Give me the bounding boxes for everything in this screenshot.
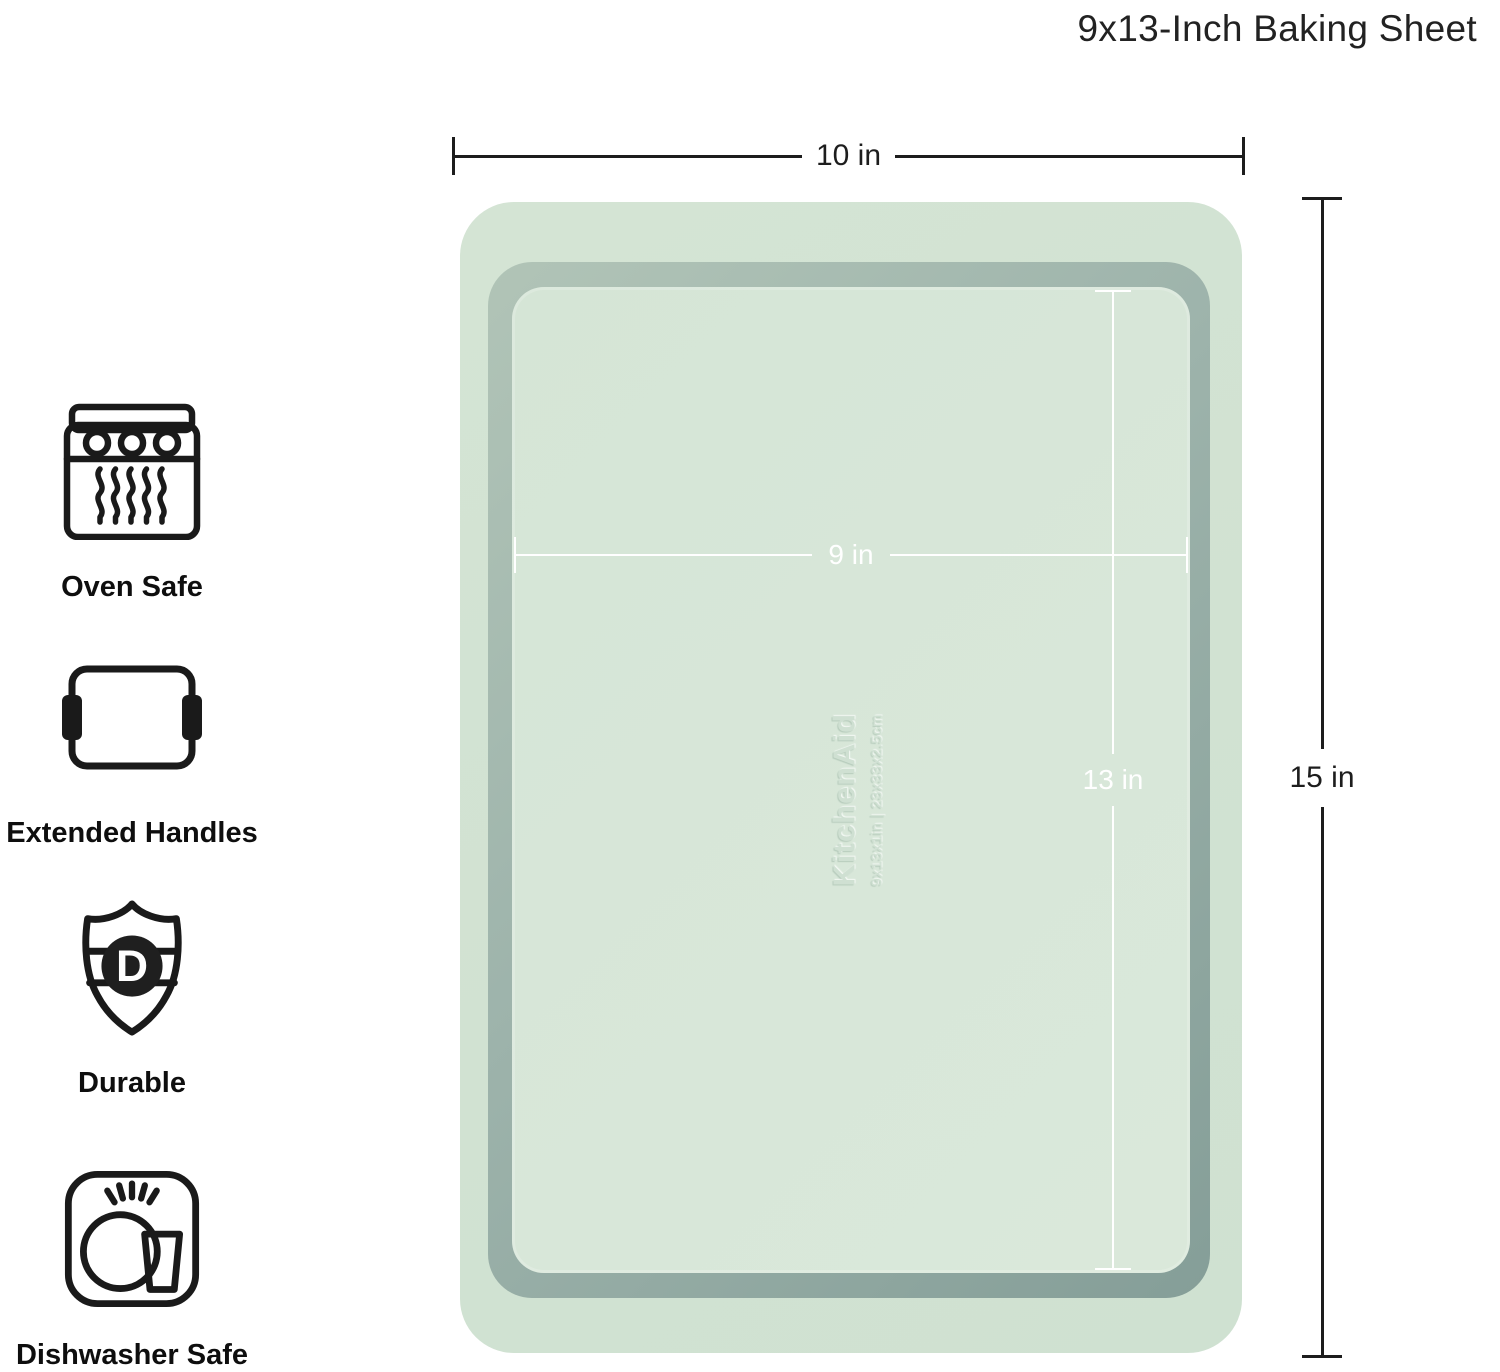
- feature-dishwasher-safe: Dishwasher Safe: [0, 1170, 264, 1372]
- dimension-line: [895, 155, 1242, 158]
- inner-width-label: 9 in: [812, 539, 889, 571]
- durable-badge-letter: D: [116, 942, 148, 991]
- feature-label-oven-safe: Oven Safe: [61, 571, 203, 604]
- feature-oven-safe: Oven Safe: [0, 403, 264, 604]
- dishwasher-icon: [62, 1170, 202, 1313]
- feature-label-dishwasher-safe: Dishwasher Safe: [16, 1339, 248, 1372]
- extended-handles-icon: [61, 665, 203, 775]
- dimension-line: [1112, 806, 1114, 1268]
- dimension-line: [516, 554, 812, 556]
- inner-width-dimension: 9 in: [514, 536, 1188, 574]
- dimension-line: [1321, 200, 1324, 749]
- dimension-line: [455, 155, 802, 158]
- outer-width-label: 10 in: [802, 139, 895, 173]
- dimension-tick: [1302, 1355, 1342, 1358]
- feature-label-extended-handles: Extended Handles: [6, 817, 257, 850]
- outer-height-label: 15 in: [1289, 749, 1354, 807]
- feature-label-durable: Durable: [78, 1067, 186, 1100]
- baking-sheet-wall: KitchenAid 9x13x1in | 23x33x2.5cm 9 in 1…: [488, 262, 1210, 1298]
- embossed-branding: KitchenAid 9x13x1in | 23x33x2.5cm: [827, 687, 886, 887]
- dimension-tick: [1242, 137, 1245, 175]
- baking-sheet: KitchenAid 9x13x1in | 23x33x2.5cm 9 in 1…: [460, 202, 1242, 1353]
- embossed-brand-text: KitchenAid: [827, 687, 863, 887]
- outer-width-dimension: 10 in: [452, 137, 1245, 175]
- page-title: 9x13-Inch Baking Sheet: [1078, 8, 1477, 50]
- inner-length-label: 13 in: [1083, 754, 1144, 806]
- baking-sheet-floor: KitchenAid 9x13x1in | 23x33x2.5cm 9 in 1…: [512, 287, 1190, 1273]
- inner-length-dimension: 13 in: [1094, 290, 1132, 1270]
- feature-durable: D Durable: [0, 898, 264, 1100]
- oven-icon: [62, 403, 202, 545]
- feature-extended-handles: Extended Handles: [0, 665, 264, 850]
- dimension-tick: [1186, 537, 1188, 573]
- durable-shield-icon: D: [72, 898, 192, 1043]
- outer-height-dimension: 15 in: [1300, 197, 1344, 1358]
- dimension-line: [1321, 807, 1324, 1356]
- dimension-line: [1112, 292, 1114, 754]
- dimension-line: [890, 554, 1186, 556]
- embossed-size-text: 9x13x1in | 23x33x2.5cm: [869, 687, 886, 887]
- dimension-tick: [1095, 1268, 1131, 1270]
